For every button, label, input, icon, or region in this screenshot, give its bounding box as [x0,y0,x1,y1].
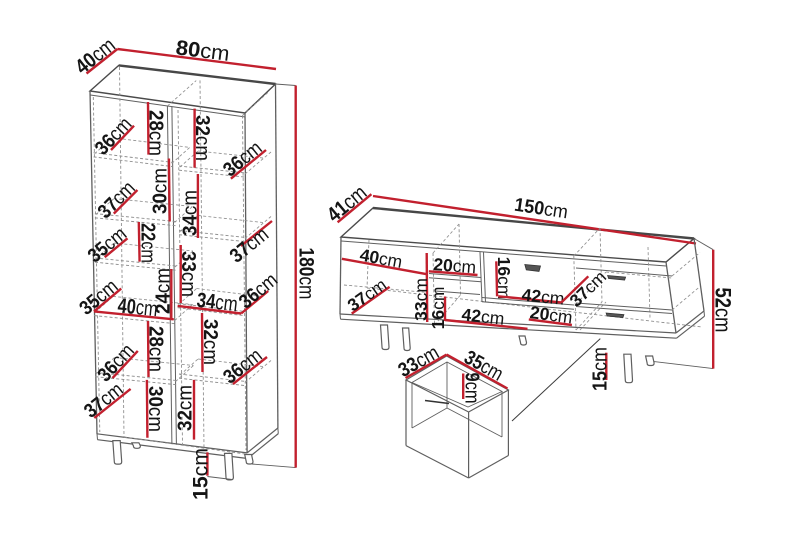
svg-text:30cm: 30cm [150,168,172,214]
svg-text:34cm: 34cm [196,289,239,317]
svg-text:32cm: 32cm [175,385,197,431]
svg-text:32cm: 32cm [191,115,213,161]
svg-text:22cm: 22cm [136,223,158,263]
svg-text:32cm: 32cm [199,319,221,365]
svg-text:9cm: 9cm [461,373,483,404]
svg-text:15cm: 15cm [590,347,612,391]
svg-text:16cm: 16cm [428,287,448,330]
svg-text:52cm: 52cm [710,288,735,333]
svg-text:30cm: 30cm [144,386,166,432]
svg-text:180cm: 180cm [295,248,318,300]
svg-text:20cm: 20cm [433,254,477,277]
svg-text:34cm: 34cm [179,190,201,236]
svg-text:28cm: 28cm [145,326,167,372]
svg-text:40cm: 40cm [117,294,159,321]
svg-text:15cm: 15cm [190,448,213,500]
svg-text:28cm: 28cm [145,110,167,156]
svg-text:33cm: 33cm [177,251,199,297]
svg-text:16cm: 16cm [494,257,514,300]
